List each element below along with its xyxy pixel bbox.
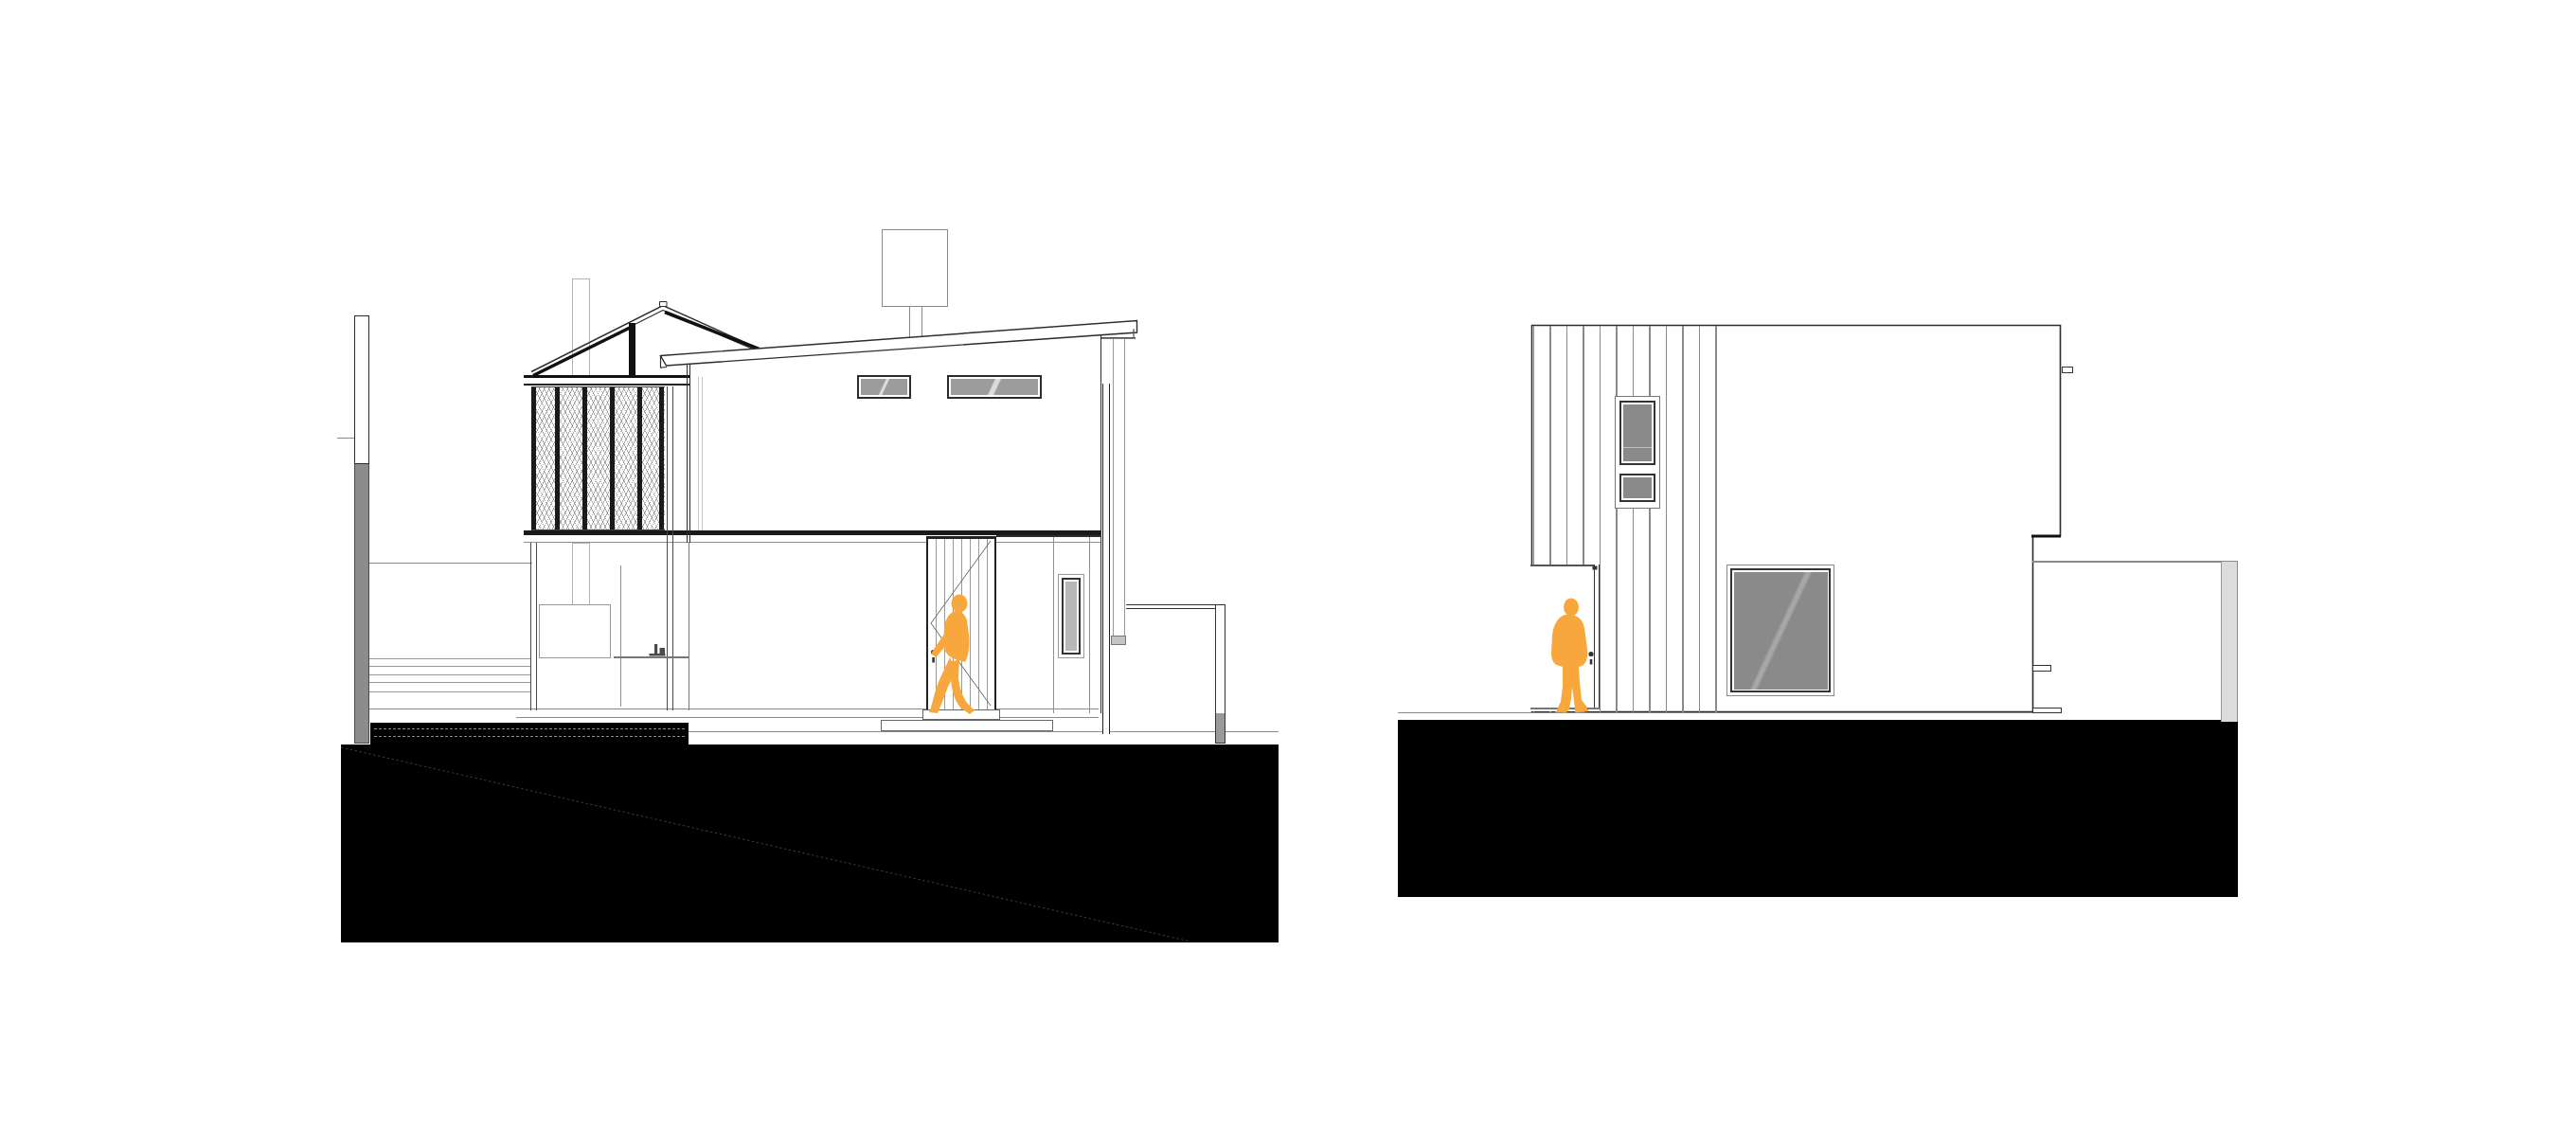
gable-roof-inner-line: [531, 311, 761, 377]
figure-back-foot: [1555, 708, 1566, 713]
figure-front-foot: [1575, 708, 1589, 713]
ground-seam-line: [341, 747, 1190, 942]
door-handle-right: [1588, 652, 1593, 665]
figure-head: [1564, 599, 1579, 617]
ridge-cap: [660, 302, 668, 307]
shed-roof: [661, 321, 1137, 367]
king-post: [629, 323, 635, 377]
door-hinge-right: [1593, 566, 1598, 570]
elevation-sheet: [0, 0, 2576, 1148]
human-figure-standing: [1551, 599, 1589, 713]
figure-head: [952, 595, 968, 613]
human-figure-walking: [929, 595, 975, 714]
linework-layer: [0, 0, 2576, 1148]
figure-body: [1551, 615, 1587, 712]
kitchen-faucet: [650, 644, 666, 656]
figure-back-leg: [951, 660, 975, 714]
gable-rafter-lines: [533, 313, 766, 376]
